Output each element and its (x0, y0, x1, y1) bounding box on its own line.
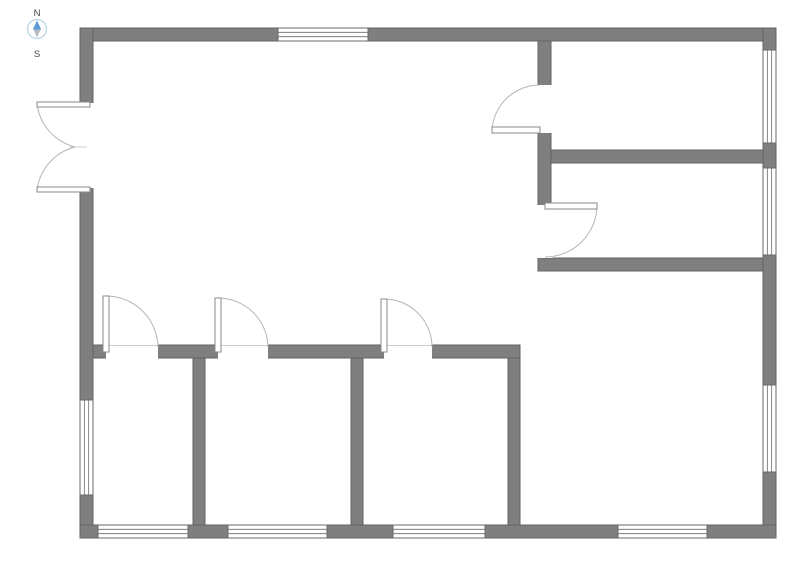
compass: N S (28, 8, 47, 60)
floor-plan-canvas: N S (0, 0, 800, 565)
door-entry-top-panel (492, 127, 540, 133)
compass-north-label: N (34, 8, 41, 19)
window-left (80, 400, 93, 495)
window-bottom-1 (98, 525, 188, 538)
door-entry-bottom-panel (545, 203, 597, 209)
window-right-1 (763, 50, 776, 143)
wall-interior-right-rooms-bottom (538, 258, 763, 271)
compass-south-label: S (34, 49, 40, 60)
door-room-1-swing-arc (106, 296, 158, 347)
wall-interior-bottom-divider-1 (193, 358, 205, 525)
door-double-left-bottom-leaf-swing-arc (37, 147, 75, 190)
wall-interior-bottom-rooms-right (508, 358, 520, 525)
window-right-2 (763, 168, 776, 255)
window-top (278, 28, 368, 41)
wall-interior-bottom-divider-2 (351, 358, 363, 525)
door-room-2-panel (215, 298, 221, 352)
opening-double-door (79, 103, 95, 188)
wall-exterior-top (80, 28, 776, 41)
door-double-left-top-leaf-swing-arc (37, 104, 75, 147)
opening-door-entry-bottom (537, 205, 553, 258)
door-entry-bottom-swing-arc (545, 206, 597, 257)
door-room-1-panel (103, 296, 109, 352)
window-bottom-3 (393, 525, 485, 538)
floor-plan-drawing: N S (0, 0, 800, 565)
floor-plan-shapes (37, 28, 776, 538)
door-room-2-swing-arc (218, 298, 268, 347)
door-double-left-bottom-leaf-panel (37, 187, 90, 192)
door-double-left-top-leaf-panel (37, 102, 90, 107)
door-room-3-panel (381, 299, 387, 352)
window-bottom-4 (618, 525, 707, 538)
door-room-3-swing-arc (384, 299, 432, 347)
window-right-3 (763, 385, 776, 472)
door-entry-top-swing-arc (492, 85, 540, 130)
wall-interior-right-rooms-divider (551, 150, 763, 163)
window-bottom-2 (228, 525, 327, 538)
opening-door-entry-top (537, 85, 553, 133)
